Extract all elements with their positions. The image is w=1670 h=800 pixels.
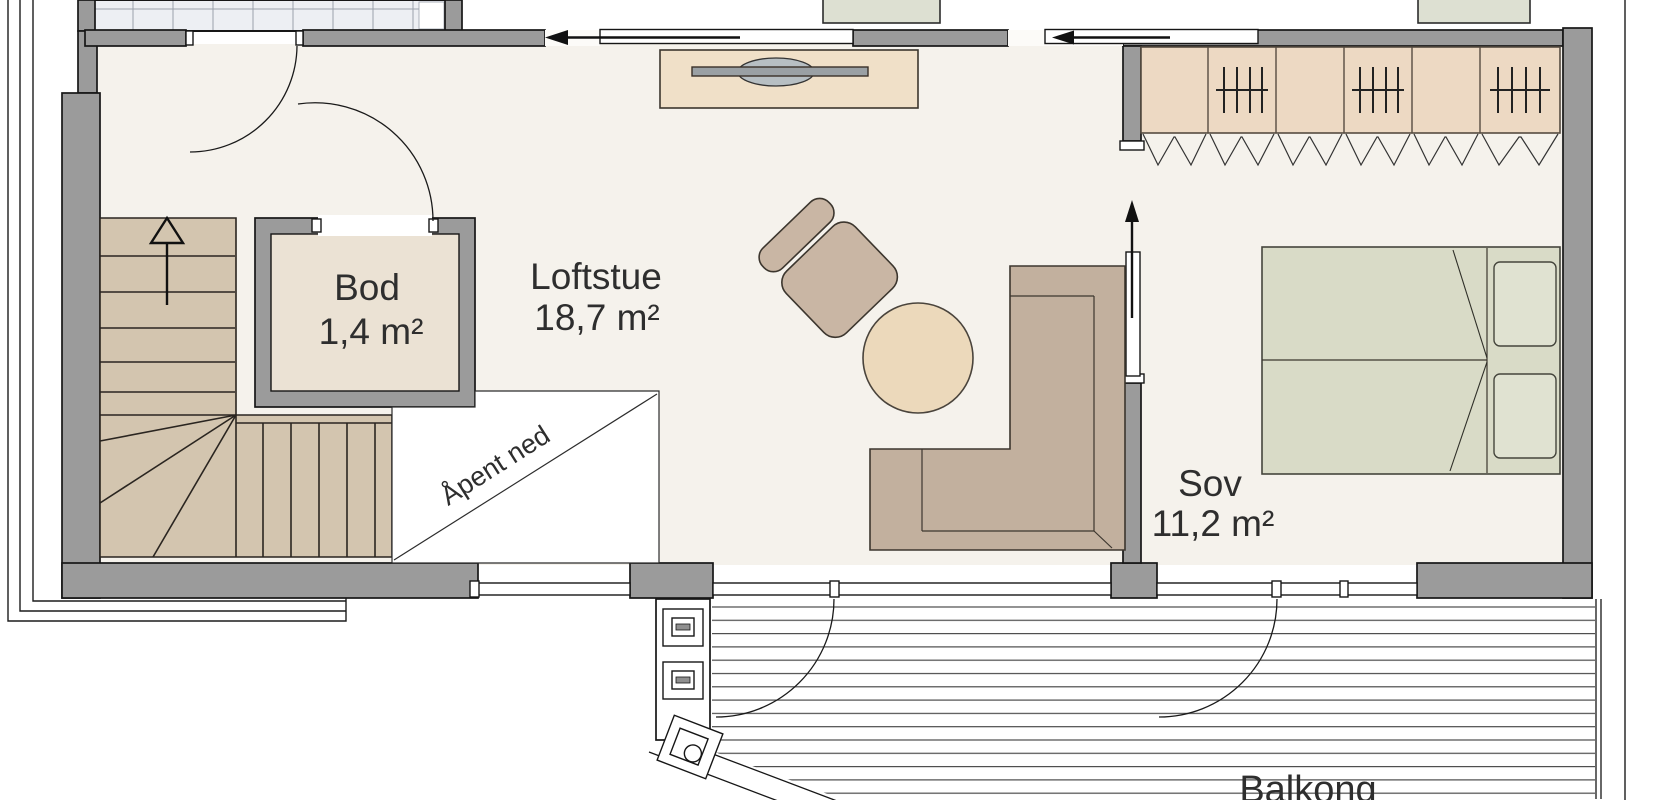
wall-pier-partition-base	[1111, 563, 1157, 598]
railing-post	[663, 609, 703, 646]
wall-top-1	[85, 30, 186, 46]
wall-pier-balcony-left	[630, 563, 713, 598]
room-area-bod: 1,4 m²	[319, 311, 424, 352]
window-mullion	[1272, 581, 1281, 597]
room-label-bod: Bod	[334, 267, 400, 308]
window-mullion	[1340, 581, 1348, 597]
railing-post	[663, 662, 703, 699]
wall-left	[62, 93, 100, 598]
room-label-sov: Sov	[1178, 463, 1242, 504]
wall-right	[1563, 28, 1592, 598]
room-label-loftstue: Loftstue	[530, 256, 662, 297]
balcony-label: Balkong	[1239, 769, 1376, 800]
wall-partition-upper	[1123, 46, 1141, 141]
upper-cabinets	[823, 0, 1530, 23]
wall-top-3	[853, 30, 1008, 46]
wall-stub-window-right	[445, 0, 462, 31]
deck-boards	[712, 599, 1595, 799]
pillow	[1494, 374, 1556, 458]
skylight-window	[93, 0, 447, 31]
wall-top-2	[303, 30, 545, 46]
balcony-door-left	[713, 583, 835, 595]
wall-stub-left	[78, 0, 95, 31]
floor-plan-page: Åpent ned	[0, 0, 1670, 800]
floor-plan-drawing: Åpent ned	[0, 0, 1670, 800]
window-mullion	[830, 581, 839, 597]
tv-bench	[660, 50, 918, 108]
door-hinge-block	[312, 219, 321, 232]
coffee-table	[863, 303, 973, 413]
window-band	[478, 583, 630, 595]
tv-screen	[692, 67, 868, 76]
wall-bottom-left	[62, 563, 478, 598]
wall-end-cap	[1120, 141, 1144, 150]
double-bed	[1262, 247, 1560, 474]
wall-bottom-right-corner	[1417, 563, 1592, 598]
balcony	[649, 599, 1601, 800]
window-band	[835, 583, 1111, 595]
door-hinge-block	[186, 31, 193, 45]
balcony-door-right	[1157, 583, 1278, 595]
room-area-sov: 11,2 m²	[1152, 503, 1275, 544]
open-to-below: Åpent ned	[392, 391, 659, 563]
window-mullion	[470, 581, 479, 597]
pillow	[1494, 262, 1556, 346]
door-hinge-block	[296, 31, 303, 45]
room-area-loftstue: 18,7 m²	[534, 297, 659, 338]
